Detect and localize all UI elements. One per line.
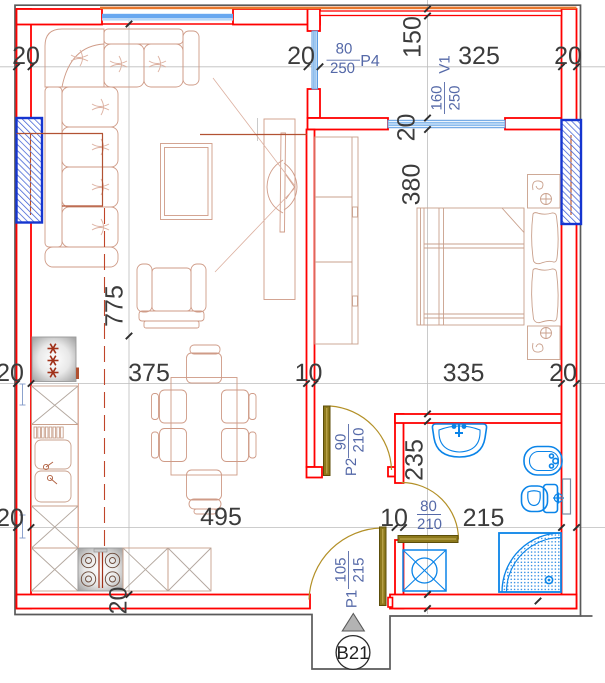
- svg-text:150: 150: [399, 16, 427, 58]
- svg-text:105: 105: [333, 557, 350, 582]
- svg-text:P2: P2: [343, 458, 360, 476]
- svg-text:210: 210: [417, 516, 442, 533]
- svg-text:20: 20: [0, 504, 24, 532]
- svg-text:250: 250: [330, 60, 355, 77]
- svg-text:90: 90: [333, 434, 350, 451]
- svg-text:80: 80: [336, 41, 353, 58]
- svg-text:210: 210: [351, 427, 368, 452]
- svg-text:20: 20: [393, 114, 421, 142]
- svg-text:B21: B21: [337, 642, 370, 663]
- svg-text:20: 20: [549, 359, 577, 387]
- svg-text:375: 375: [128, 359, 170, 387]
- svg-text:380: 380: [397, 164, 425, 206]
- svg-text:P1: P1: [344, 590, 361, 608]
- svg-text:P4: P4: [360, 53, 380, 70]
- svg-text:775: 775: [101, 285, 129, 327]
- svg-text:20: 20: [554, 42, 582, 70]
- svg-text:20: 20: [105, 587, 133, 615]
- svg-text:160: 160: [429, 85, 446, 110]
- svg-text:495: 495: [200, 503, 242, 531]
- svg-text:80: 80: [420, 498, 437, 515]
- svg-text:20: 20: [287, 42, 315, 70]
- svg-text:215: 215: [351, 557, 368, 582]
- svg-text:V1: V1: [437, 55, 454, 73]
- svg-text:10: 10: [295, 359, 323, 387]
- svg-text:20: 20: [0, 359, 24, 387]
- svg-text:215: 215: [463, 504, 505, 532]
- svg-text:250: 250: [447, 85, 464, 110]
- svg-text:10: 10: [380, 504, 408, 532]
- svg-text:335: 335: [443, 359, 485, 387]
- svg-text:325: 325: [458, 42, 500, 70]
- svg-text:235: 235: [401, 439, 429, 481]
- svg-text:20: 20: [12, 42, 40, 70]
